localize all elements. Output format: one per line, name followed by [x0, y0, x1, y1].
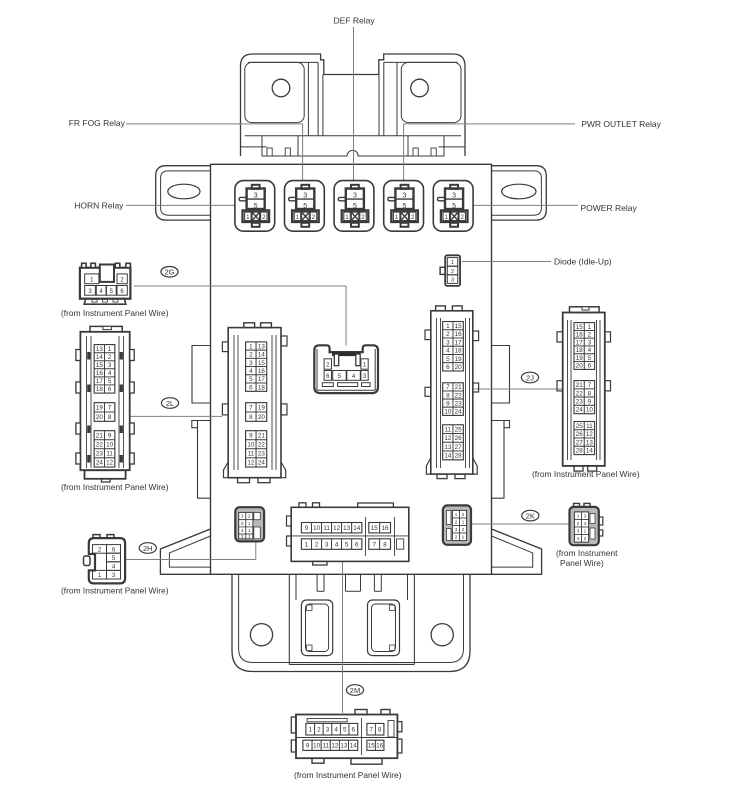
svg-text:13: 13 [343, 525, 351, 532]
svg-text:DEF Relay: DEF Relay [334, 16, 376, 26]
svg-text:15: 15 [371, 525, 379, 532]
svg-text:12: 12 [444, 435, 452, 442]
svg-text:18: 18 [96, 386, 104, 393]
svg-text:19: 19 [576, 355, 584, 362]
svg-text:22: 22 [96, 442, 104, 449]
svg-text:1: 1 [451, 260, 454, 266]
svg-text:12: 12 [586, 431, 594, 438]
svg-text:7: 7 [373, 541, 377, 548]
svg-text:(from Instrument Panel Wire): (from Instrument Panel Wire) [294, 770, 402, 780]
svg-text:3: 3 [452, 193, 456, 200]
svg-text:2: 2 [249, 352, 253, 359]
svg-text:10: 10 [247, 442, 255, 449]
svg-text:(from Instrument Panel Wire): (from Instrument Panel Wire) [61, 586, 169, 596]
svg-text:8: 8 [446, 392, 450, 399]
svg-text:11: 11 [445, 427, 452, 434]
svg-text:2G: 2G [164, 268, 174, 277]
svg-text:11: 11 [323, 525, 330, 532]
svg-text:1: 1 [309, 727, 313, 734]
svg-text:17: 17 [455, 339, 463, 346]
svg-text:2: 2 [451, 269, 454, 275]
svg-text:4: 4 [446, 348, 450, 355]
svg-text:20: 20 [576, 363, 584, 370]
svg-text:1: 1 [249, 343, 253, 350]
svg-text:11: 11 [106, 451, 113, 458]
svg-text:16: 16 [455, 331, 463, 338]
svg-text:9: 9 [446, 400, 450, 407]
svg-text:17: 17 [96, 378, 104, 385]
svg-text:24: 24 [258, 460, 266, 467]
svg-text:5: 5 [249, 376, 253, 383]
svg-text:14: 14 [586, 448, 594, 455]
svg-text:6: 6 [588, 363, 592, 370]
svg-text:17: 17 [258, 376, 266, 383]
svg-text:8: 8 [588, 390, 592, 397]
svg-text:POWER Relay: POWER Relay [581, 203, 638, 213]
svg-text:15: 15 [368, 743, 376, 750]
svg-text:5: 5 [303, 203, 307, 210]
svg-text:20: 20 [455, 364, 463, 371]
svg-text:21: 21 [576, 382, 584, 389]
svg-text:17: 17 [576, 339, 584, 346]
svg-text:14: 14 [96, 354, 104, 361]
svg-text:1: 1 [395, 214, 399, 221]
svg-text:2J: 2J [526, 373, 534, 382]
svg-text:15: 15 [96, 362, 104, 369]
svg-text:5: 5 [403, 203, 407, 210]
svg-text:3: 3 [451, 277, 454, 283]
svg-text:14: 14 [353, 525, 361, 532]
svg-text:11: 11 [248, 451, 255, 458]
svg-text:5: 5 [343, 727, 347, 734]
svg-text:7: 7 [446, 384, 450, 391]
svg-text:(from Instrument: (from Instrument [556, 548, 618, 558]
svg-text:20: 20 [258, 414, 266, 421]
svg-text:20: 20 [96, 414, 104, 421]
svg-text:8: 8 [108, 414, 112, 421]
svg-text:23: 23 [258, 451, 266, 458]
svg-text:1: 1 [108, 346, 112, 353]
svg-text:3: 3 [353, 193, 357, 200]
svg-text:4: 4 [108, 370, 112, 377]
svg-text:2: 2 [446, 331, 450, 338]
svg-text:8: 8 [378, 727, 382, 734]
svg-text:21: 21 [455, 384, 463, 391]
svg-text:2: 2 [317, 727, 321, 734]
svg-text:4: 4 [334, 727, 338, 734]
svg-text:22: 22 [258, 442, 266, 449]
svg-text:10: 10 [313, 743, 321, 750]
svg-text:13: 13 [340, 743, 348, 750]
svg-text:5: 5 [353, 203, 357, 210]
svg-text:22: 22 [455, 392, 463, 399]
svg-text:9: 9 [588, 399, 592, 406]
svg-text:5: 5 [446, 356, 450, 363]
svg-text:14: 14 [350, 743, 358, 750]
svg-text:11: 11 [586, 423, 593, 430]
svg-text:3: 3 [325, 541, 329, 548]
svg-text:9: 9 [249, 433, 253, 440]
svg-text:3: 3 [446, 339, 450, 346]
svg-text:5: 5 [345, 541, 349, 548]
svg-text:7: 7 [108, 405, 112, 412]
svg-text:9: 9 [108, 433, 112, 440]
svg-text:12: 12 [247, 460, 255, 467]
svg-text:22: 22 [576, 390, 584, 397]
svg-text:1: 1 [305, 541, 309, 548]
svg-text:1: 1 [345, 214, 349, 221]
svg-text:3: 3 [588, 339, 592, 346]
svg-text:9: 9 [306, 743, 310, 750]
svg-text:5: 5 [254, 203, 258, 210]
svg-text:25: 25 [576, 423, 584, 430]
svg-text:26: 26 [455, 435, 463, 442]
svg-text:19: 19 [96, 405, 104, 412]
svg-text:13: 13 [258, 343, 266, 350]
svg-text:14: 14 [258, 352, 266, 359]
svg-text:12: 12 [333, 525, 341, 532]
svg-text:8: 8 [383, 541, 387, 548]
svg-text:2M: 2M [350, 686, 360, 695]
svg-text:6: 6 [249, 384, 253, 391]
svg-text:13: 13 [444, 444, 452, 451]
svg-text:27: 27 [455, 444, 463, 451]
svg-text:6: 6 [355, 541, 359, 548]
svg-text:19: 19 [258, 405, 266, 412]
svg-text:18: 18 [576, 347, 584, 354]
svg-text:2L: 2L [166, 399, 174, 408]
svg-text:6: 6 [108, 386, 112, 393]
svg-text:7: 7 [369, 727, 373, 734]
svg-text:PWR OUTLET Relay: PWR OUTLET Relay [581, 119, 661, 129]
svg-text:19: 19 [455, 356, 463, 363]
svg-text:2: 2 [312, 214, 316, 221]
svg-text:27: 27 [576, 439, 584, 446]
svg-text:1: 1 [246, 214, 250, 221]
svg-text:16: 16 [376, 743, 384, 750]
svg-text:1: 1 [588, 324, 592, 331]
svg-text:3: 3 [254, 193, 258, 200]
svg-text:14: 14 [444, 453, 452, 460]
svg-text:4: 4 [335, 541, 339, 548]
svg-text:Panel Wire): Panel Wire) [560, 558, 604, 568]
svg-text:6: 6 [446, 364, 450, 371]
svg-text:3: 3 [326, 727, 330, 734]
svg-text:25: 25 [455, 427, 463, 434]
svg-text:10: 10 [106, 442, 114, 449]
svg-text:Diode (Idle-Up): Diode (Idle-Up) [554, 257, 612, 267]
svg-text:5: 5 [588, 355, 592, 362]
svg-text:24: 24 [96, 460, 104, 467]
svg-text:1: 1 [296, 214, 300, 221]
svg-text:FR FOG Relay: FR FOG Relay [69, 118, 126, 128]
svg-text:26: 26 [576, 431, 584, 438]
svg-text:1: 1 [446, 323, 450, 330]
svg-text:5: 5 [452, 203, 456, 210]
svg-text:2: 2 [361, 214, 365, 221]
svg-text:23: 23 [576, 399, 584, 406]
svg-text:21: 21 [258, 433, 266, 440]
svg-text:2: 2 [315, 541, 319, 548]
svg-text:2: 2 [460, 214, 464, 221]
svg-text:1: 1 [444, 214, 448, 221]
svg-text:(from Instrument Panel Wire): (from Instrument Panel Wire) [61, 308, 169, 318]
svg-text:24: 24 [455, 409, 463, 416]
svg-text:12: 12 [331, 743, 339, 750]
svg-text:7: 7 [249, 405, 253, 412]
svg-text:4: 4 [249, 368, 253, 375]
svg-text:(from Instrument Panel Wire): (from Instrument Panel Wire) [61, 482, 169, 492]
svg-text:10: 10 [586, 407, 594, 414]
svg-text:2: 2 [411, 214, 415, 221]
svg-text:16: 16 [576, 332, 584, 339]
svg-text:21: 21 [96, 433, 104, 440]
svg-text:15: 15 [258, 360, 266, 367]
svg-text:8: 8 [249, 414, 253, 421]
svg-text:7: 7 [588, 382, 592, 389]
svg-text:13: 13 [586, 439, 594, 446]
svg-text:15: 15 [455, 323, 463, 330]
svg-text:12: 12 [106, 460, 114, 467]
svg-text:3: 3 [403, 193, 407, 200]
svg-text:28: 28 [576, 448, 584, 455]
svg-text:HORN Relay: HORN Relay [74, 201, 124, 211]
svg-text:4: 4 [588, 347, 592, 354]
svg-text:2H: 2H [143, 544, 153, 553]
svg-text:3: 3 [108, 362, 112, 369]
svg-text:10: 10 [313, 525, 321, 532]
svg-text:2: 2 [262, 214, 266, 221]
svg-text:9: 9 [305, 525, 309, 532]
svg-text:3: 3 [249, 360, 253, 367]
svg-text:10: 10 [444, 409, 452, 416]
svg-text:24: 24 [576, 407, 584, 414]
svg-text:2: 2 [108, 354, 112, 361]
svg-text:3: 3 [303, 193, 307, 200]
svg-text:23: 23 [96, 451, 104, 458]
svg-text:16: 16 [258, 368, 266, 375]
svg-text:2: 2 [588, 332, 592, 339]
svg-text:2K: 2K [526, 512, 535, 521]
svg-text:18: 18 [258, 384, 266, 391]
svg-text:28: 28 [455, 453, 463, 460]
svg-text:23: 23 [455, 400, 463, 407]
svg-text:5: 5 [108, 378, 112, 385]
svg-text:(from Instrument Panel Wire): (from Instrument Panel Wire) [532, 469, 640, 479]
svg-text:16: 16 [381, 525, 389, 532]
svg-text:6: 6 [352, 727, 356, 734]
svg-text:15: 15 [576, 324, 584, 331]
svg-text:11: 11 [323, 743, 330, 750]
svg-text:18: 18 [455, 348, 463, 355]
svg-text:13: 13 [96, 346, 104, 353]
svg-text:16: 16 [96, 370, 104, 377]
